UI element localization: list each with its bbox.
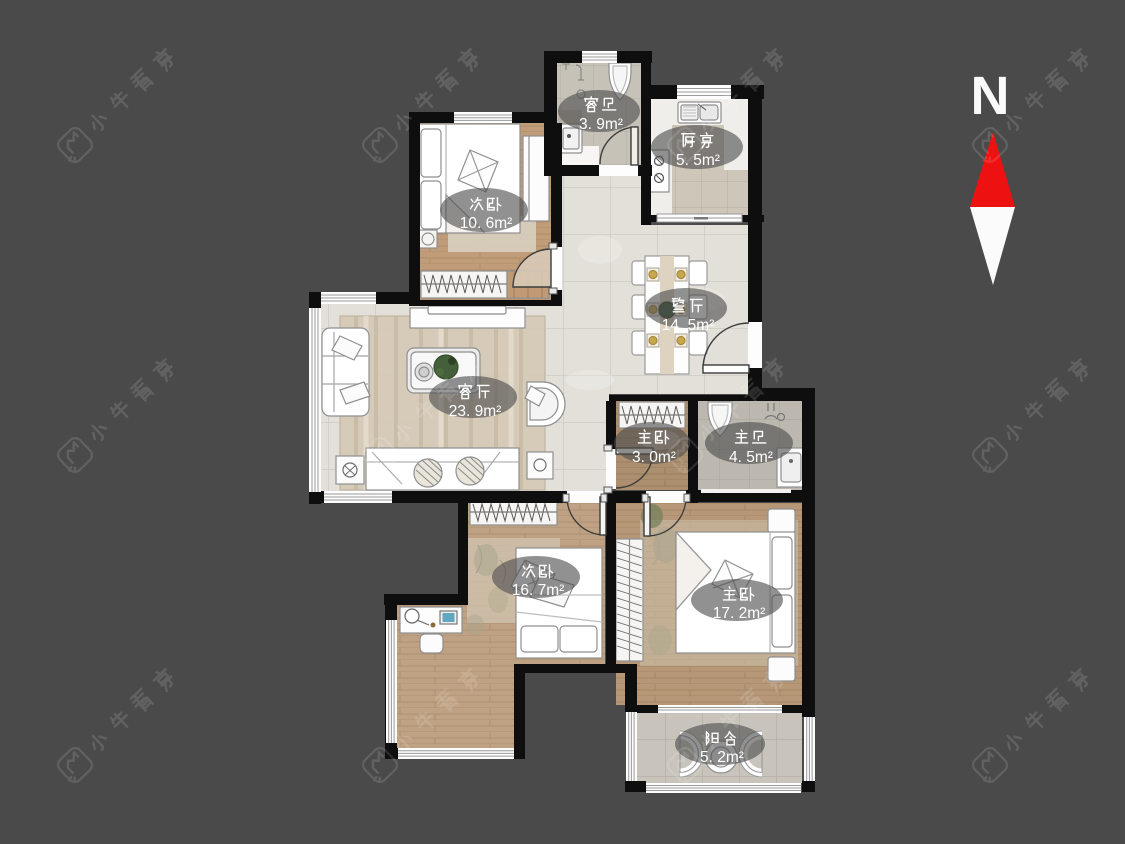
svg-text:16. 7m²: 16. 7m²: [512, 582, 565, 599]
svg-text:5. 2m²: 5. 2m²: [700, 749, 744, 766]
svg-text:N: N: [971, 66, 1010, 126]
svg-text:14. 5m²: 14. 5m²: [662, 317, 715, 334]
svg-text:10. 6m²: 10. 6m²: [460, 215, 513, 232]
svg-text:3. 9m²: 3. 9m²: [579, 116, 623, 133]
svg-text:23. 9m²: 23. 9m²: [449, 403, 502, 420]
svg-text:4. 5m²: 4. 5m²: [729, 449, 773, 466]
svg-text:17. 2m²: 17. 2m²: [713, 605, 766, 622]
